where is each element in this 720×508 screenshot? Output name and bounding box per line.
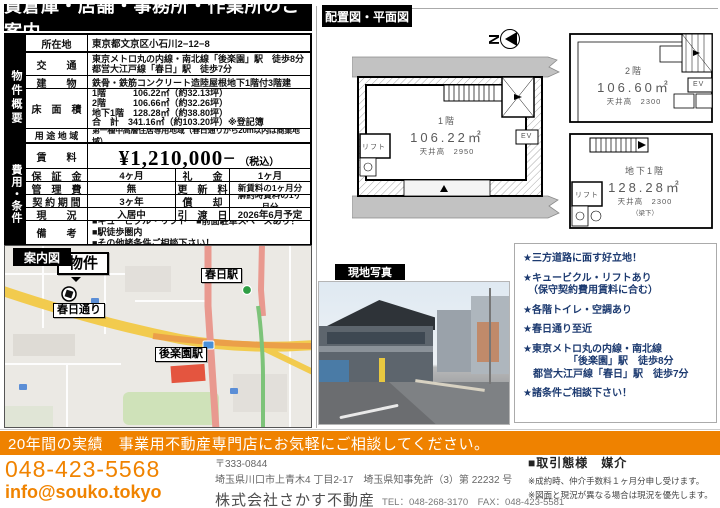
map-graphic <box>5 246 311 427</box>
notes-label: 備 考 <box>26 221 88 244</box>
notes-value: ■キュービクル・リフト ■前面駐車スペースあり！ ■駅徒歩圏内 ■その他諸条件ご… <box>88 221 310 244</box>
footer-divider <box>0 429 720 430</box>
north-compass: N <box>489 29 520 49</box>
contract-term-value: 3ヶ年 <box>88 195 176 207</box>
transport-row: 交 通 東京メトロ丸の内線・南北線「後楽園」駅 徒歩8分 都営大江戸線「春日」駅… <box>26 53 310 75</box>
b1-area: 128.28㎡ <box>590 177 700 196</box>
mgmt-fee-value: 無 <box>88 182 176 194</box>
transport-value: 東京メトロ丸の内線・南北線「後楽園」駅 徒歩8分 都営大江戸線「春日」駅 徒歩7… <box>88 53 310 75</box>
highlight-item: ★諸条件ご相談下さい！ <box>523 388 708 401</box>
deposit-row: 保 証 金 4ヶ月 礼 金 1ヶ月 <box>26 168 310 181</box>
floor-area-row: 床 面 積 1階 106.22㎡（約32.13坪） 2階 106.66㎡（約32… <box>26 88 310 128</box>
phone-number: 048-423-5568 <box>5 456 160 483</box>
property-table: 所在地 東京都文京区小石川2−12−8 物件概要 交 通 東京メトロ丸の内線・南… <box>4 33 312 246</box>
deposit-label: 保 証 金 <box>26 169 88 181</box>
b1-ceiling: 天井高 2300 <box>590 196 700 207</box>
rent-tax-note: （税込） <box>239 153 279 168</box>
site-photo <box>318 281 510 425</box>
deal-type-block: ■取引態様 媒介 ※成約時、仲介手数料１ヶ月分申し受けます。 ※図面と現況が異な… <box>528 454 713 501</box>
company-name: 株式会社さかす不動産 <box>215 489 375 508</box>
current-status-value: 入居中 <box>88 208 176 220</box>
deal-note-1: ※成約時、仲介手数料１ヶ月分申し受けます。 <box>528 475 713 487</box>
building-value: 鉄骨・鉄筋コンクリート造陸屋根地下1階付3階建 <box>88 76 310 88</box>
handover-label: 引 渡 日 <box>176 208 230 220</box>
compass-n-label: N <box>486 34 503 45</box>
page-title: 貸倉庫・店舗・事務所・作業所のご案内 <box>4 4 312 31</box>
location-spacer <box>6 35 26 51</box>
costs-section-label: 費用・条件 <box>6 144 26 244</box>
key-money-value: 1ヶ月 <box>230 169 310 181</box>
f1-ceiling: 天井高 2950 <box>392 146 502 157</box>
b1-lift-label: リフト <box>575 190 599 200</box>
overview-section-label: 物件概要 <box>6 53 26 142</box>
postal-code: 〒333-0844 <box>215 455 564 470</box>
zoning-label: 用 途 地 域 <box>26 129 88 142</box>
location-row: 所在地 東京都文京区小石川2−12−8 <box>6 35 310 51</box>
location-value: 東京都文京区小石川2−12−8 <box>88 35 310 51</box>
photo-window-band <box>327 332 425 344</box>
f1-plan-label: 1階 106.22㎡ 天井高 2950 <box>392 114 502 157</box>
photo-yellow-post <box>379 358 385 384</box>
column-divider <box>316 6 317 428</box>
transport-label: 交 通 <box>26 53 88 75</box>
photo-building-mid <box>437 310 475 372</box>
deposit-value: 4ヶ月 <box>88 169 176 181</box>
highlight-item: ★キュービクル・リフトあり （保守契約費用賃料に合む） <box>523 273 708 298</box>
kasuga-street-label: 春日通り <box>53 303 105 318</box>
photo-utility-pole <box>489 288 491 384</box>
floor-area-value: 1階 106.22㎡（約32.13坪） 2階 106.66㎡（約32.26坪） … <box>88 89 310 128</box>
f1-lift-label: リフト <box>362 142 386 152</box>
b1-plan-label: 地下1階 128.28㎡ 天井高 2300 （梁下） <box>590 164 700 217</box>
property-pointer-icon <box>71 277 81 287</box>
company-address: 埼玉県川口市上青木4 丁目2-17 埼玉県知事免許（3）第 22232 号 <box>215 471 564 486</box>
highlight-item: ★春日通り至近 <box>523 324 708 337</box>
highlight-item: ★東京メトロ丸の内線・南北線 「後楽園」駅 徒歩8分 都営大江戸線「春日」駅 徒… <box>523 344 708 382</box>
renewal-fee-label: 更 新 料 <box>176 182 230 194</box>
handover-value: 2026年6月予定 <box>230 208 310 220</box>
kasuga-station-label: 春日駅 <box>201 268 242 283</box>
map-section-header: 案内図 <box>13 248 71 266</box>
f1-name: 1階 <box>392 114 502 127</box>
highlight-item: ★各階トイレ・空調あり <box>523 305 708 318</box>
deal-type: ■取引態様 媒介 <box>528 454 713 471</box>
deal-note-2: ※図面と現況が異なる場合は現況を優先します。 <box>528 489 713 501</box>
building-row: 建 物 鉄骨・鉄筋コンクリート造陸屋根地下1階付3階建 <box>26 75 310 88</box>
b1-name: 地下1階 <box>590 164 700 177</box>
top-divider <box>412 8 718 9</box>
f2-name: 2階 <box>584 64 684 77</box>
rent-label: 賃 料 <box>26 144 88 168</box>
floor-plans: 1階 106.22㎡ 天井高 2950 リフト EV 2階 106.60㎡ 天井… <box>352 26 718 238</box>
f2-plan-label: 2階 106.60㎡ 天井高 2300 <box>584 64 684 107</box>
contract-row: 契 約 期 間 3ヶ年 償 却 解約時賃料の1ヶ月分 <box>26 194 310 207</box>
mgmt-fee-row: 管 理 費 無 更 新 料 新賃料の1ヶ月分 <box>26 181 310 194</box>
costs-group: 費用・条件 賃 料 ¥1,210,000− （税込） 保 証 金 4ヶ月 礼 金… <box>6 142 310 244</box>
footer-banner: 20年間の実績 事業用不動産専門店にお気軽にご相談してください。 <box>0 431 720 455</box>
f2-area: 106.60㎡ <box>584 77 684 96</box>
photo-balcony-band <box>319 346 433 352</box>
zoning-row: 用 途 地 域 第一種中高層住居専用地域（春日通りから20m以内は商業地域） <box>26 128 310 142</box>
amortization-label: 償 却 <box>176 195 230 207</box>
f2-ev-label: EV <box>693 81 704 88</box>
photo-building-brick <box>477 322 499 362</box>
flyer-page: 貸倉庫・店舗・事務所・作業所のご案内 所在地 東京都文京区小石川2−12−8 物… <box>0 0 720 508</box>
building-label: 建 物 <box>26 76 88 88</box>
location-label: 所在地 <box>26 35 88 51</box>
mgmt-fee-label: 管 理 費 <box>26 182 88 194</box>
highlight-item: ★三方道路に面す好立地！ <box>523 253 708 266</box>
plan-section-header: 配置図・平面図 <box>322 5 412 27</box>
guide-map: 案内図 物件 春日駅 春日通り 後楽園駅 <box>4 245 312 428</box>
rent-value: ¥1,210,000− （税込） <box>88 144 310 168</box>
b1-ceiling-sub: （梁下） <box>590 207 700 217</box>
f1-area: 106.22㎡ <box>392 127 502 146</box>
f1-ev-label: EV <box>521 133 532 140</box>
zoning-value: 第一種中高層住居専用地域（春日通りから20m以内は商業地域） <box>88 129 310 142</box>
korakuen-station-label: 後楽園駅 <box>155 347 207 362</box>
f2-ceiling: 天井高 2300 <box>584 96 684 107</box>
overview-group: 物件概要 交 通 東京メトロ丸の内線・南北線「後楽園」駅 徒歩8分 都営大江戸線… <box>6 51 310 142</box>
photo-section-header: 現地写真 <box>335 264 405 280</box>
floor-area-label: 床 面 積 <box>26 89 88 128</box>
company-address-block: 〒333-0844 埼玉県川口市上青木4 丁目2-17 埼玉県知事免許（3）第 … <box>215 455 564 508</box>
email-address: info@souko.tokyo <box>5 482 162 503</box>
rent-row: 賃 料 ¥1,210,000− （税込） <box>26 144 310 168</box>
key-money-label: 礼 金 <box>176 169 230 181</box>
contract-term-label: 契 約 期 間 <box>26 195 88 207</box>
amortization-value: 解約時賃料の1ヶ月分 <box>230 195 310 207</box>
renewal-fee-value: 新賃料の1ヶ月分 <box>230 182 310 194</box>
notes-row: 備 考 ■キュービクル・リフト ■前面駐車スペースあり！ ■駅徒歩圏内 ■その他… <box>26 220 310 244</box>
highlights-box: ★三方道路に面す好立地！ ★キュービクル・リフトあり （保守契約費用賃料に合む）… <box>514 243 717 423</box>
current-status-label: 現 況 <box>26 208 88 220</box>
status-row: 現 況 入居中 引 渡 日 2026年6月予定 <box>26 207 310 220</box>
